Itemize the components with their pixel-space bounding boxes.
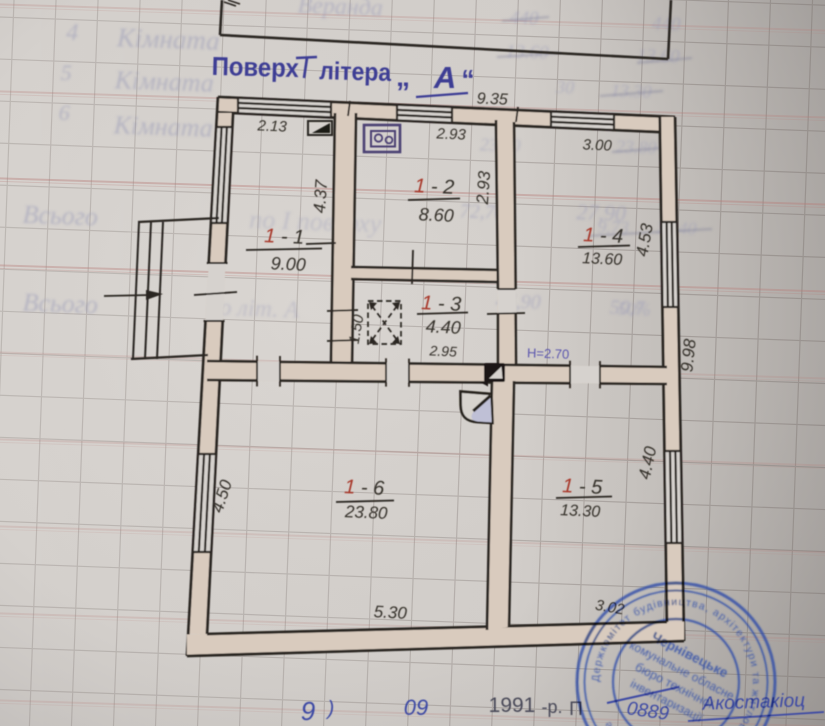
svg-text:2.93: 2.93 — [473, 170, 494, 206]
svg-text:13.60: 13.60 — [582, 250, 623, 269]
svg-text:1 - 5: 1 - 5 — [562, 475, 604, 499]
svg-text:): ) — [326, 698, 335, 720]
svg-text:Всього: Всього — [22, 288, 98, 320]
svg-text:4.40: 4.40 — [425, 316, 461, 338]
svg-text:5: 5 — [60, 60, 72, 85]
svg-text:9: 9 — [301, 696, 315, 726]
svg-text:літера: літера — [319, 57, 392, 87]
svg-text:3.00: 3.00 — [582, 136, 613, 154]
svg-text:„: „ — [396, 61, 410, 92]
svg-text:13.30: 13.30 — [611, 80, 652, 101]
svg-text:2.13: 2.13 — [256, 117, 288, 135]
svg-text:8.60: 8.60 — [418, 204, 454, 226]
svg-text:9.35: 9.35 — [476, 90, 508, 108]
svg-text:50%: 50% — [617, 298, 651, 319]
svg-text:“: “ — [462, 64, 475, 94]
svg-text:-р.: -р. — [541, 697, 562, 717]
svg-text:9.00: 9.00 — [270, 253, 306, 275]
svg-text:Кімната: Кімната — [115, 22, 220, 56]
svg-text:30: 30 — [555, 77, 575, 98]
svg-text:1 - 4: 1 - 4 — [583, 224, 624, 248]
svg-text:09: 09 — [404, 695, 428, 720]
svg-text:1 - 1: 1 - 1 — [264, 225, 305, 249]
svg-text:Веранда: Веранда — [297, 0, 383, 21]
svg-text:23.80: 23.80 — [344, 502, 389, 523]
svg-text:9.98: 9.98 — [677, 337, 699, 372]
svg-text:5.30: 5.30 — [373, 602, 408, 623]
svg-text:Кімната: Кімната — [112, 110, 213, 142]
svg-text:23.80: 23.80 — [616, 136, 657, 157]
svg-text:Кімната: Кімната — [113, 65, 214, 97]
svg-text:4: 4 — [66, 20, 79, 46]
svg-text:440: 440 — [652, 14, 682, 36]
svg-text:А: А — [433, 60, 456, 95]
svg-text:13.30: 13.30 — [560, 502, 601, 521]
svg-text:4.37: 4.37 — [310, 179, 331, 214]
svg-text:Всього: Всього — [22, 200, 98, 232]
svg-text:Н=2.70: Н=2.70 — [527, 345, 570, 361]
svg-text:1 - 6: 1 - 6 — [344, 476, 386, 500]
svg-text:1991: 1991 — [489, 694, 536, 717]
svg-text:Поверх: Поверх — [211, 52, 299, 83]
svg-text:1 - 2: 1 - 2 — [414, 175, 455, 199]
svg-text:2.93: 2.93 — [435, 125, 467, 143]
svg-text:2.95: 2.95 — [428, 342, 457, 359]
svg-text:6: 6 — [58, 100, 70, 125]
